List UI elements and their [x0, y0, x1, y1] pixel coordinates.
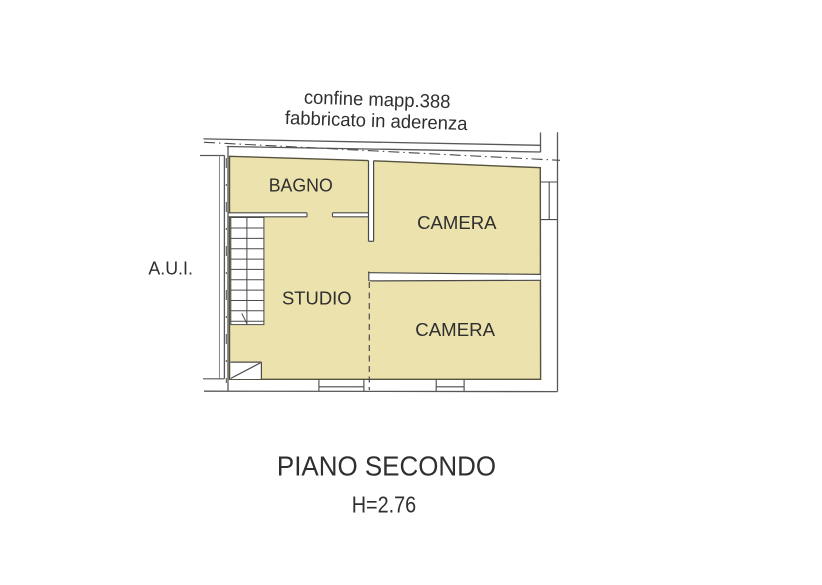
svg-text:CAMERA: CAMERA: [415, 319, 495, 340]
svg-text:CAMERA: CAMERA: [417, 212, 497, 233]
svg-text:BAGNO: BAGNO: [269, 174, 333, 195]
svg-text:H=2.76: H=2.76: [352, 492, 417, 518]
svg-text:A.U.I.: A.U.I.: [148, 257, 193, 278]
svg-text:STUDIO: STUDIO: [282, 288, 352, 309]
svg-text:PIANO SECONDO: PIANO SECONDO: [277, 451, 496, 482]
